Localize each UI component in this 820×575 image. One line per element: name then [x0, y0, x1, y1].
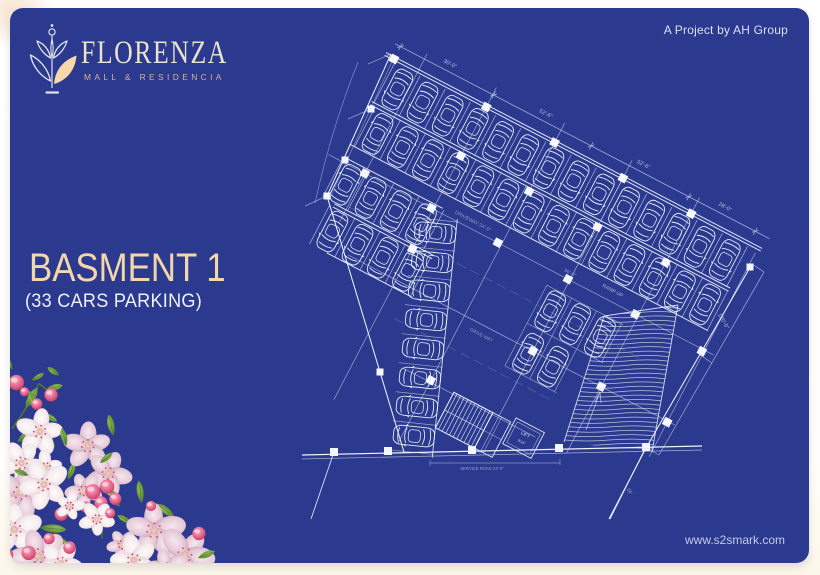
svg-text:LIFT: LIFT [520, 430, 531, 439]
svg-text:DRIVEWAY 24'-0": DRIVEWAY 24'-0" [454, 210, 493, 234]
svg-text:26': 26' [625, 487, 633, 496]
svg-text:20': 20' [664, 245, 672, 252]
svg-text:120'-0": 120'-0" [716, 313, 730, 331]
svg-text:8'x6': 8'x6' [517, 438, 527, 446]
svg-text:28'-0": 28'-0" [717, 202, 732, 214]
svg-text:52'-6": 52'-6" [538, 108, 553, 120]
svg-text:52'-6": 52'-6" [636, 159, 651, 171]
svg-text:DRIVE WAY: DRIVE WAY [469, 327, 494, 343]
svg-text:30'-0": 30'-0" [442, 58, 457, 70]
svg-text:SERVICE ROAD 24'-0": SERVICE ROAD 24'-0" [460, 466, 504, 471]
